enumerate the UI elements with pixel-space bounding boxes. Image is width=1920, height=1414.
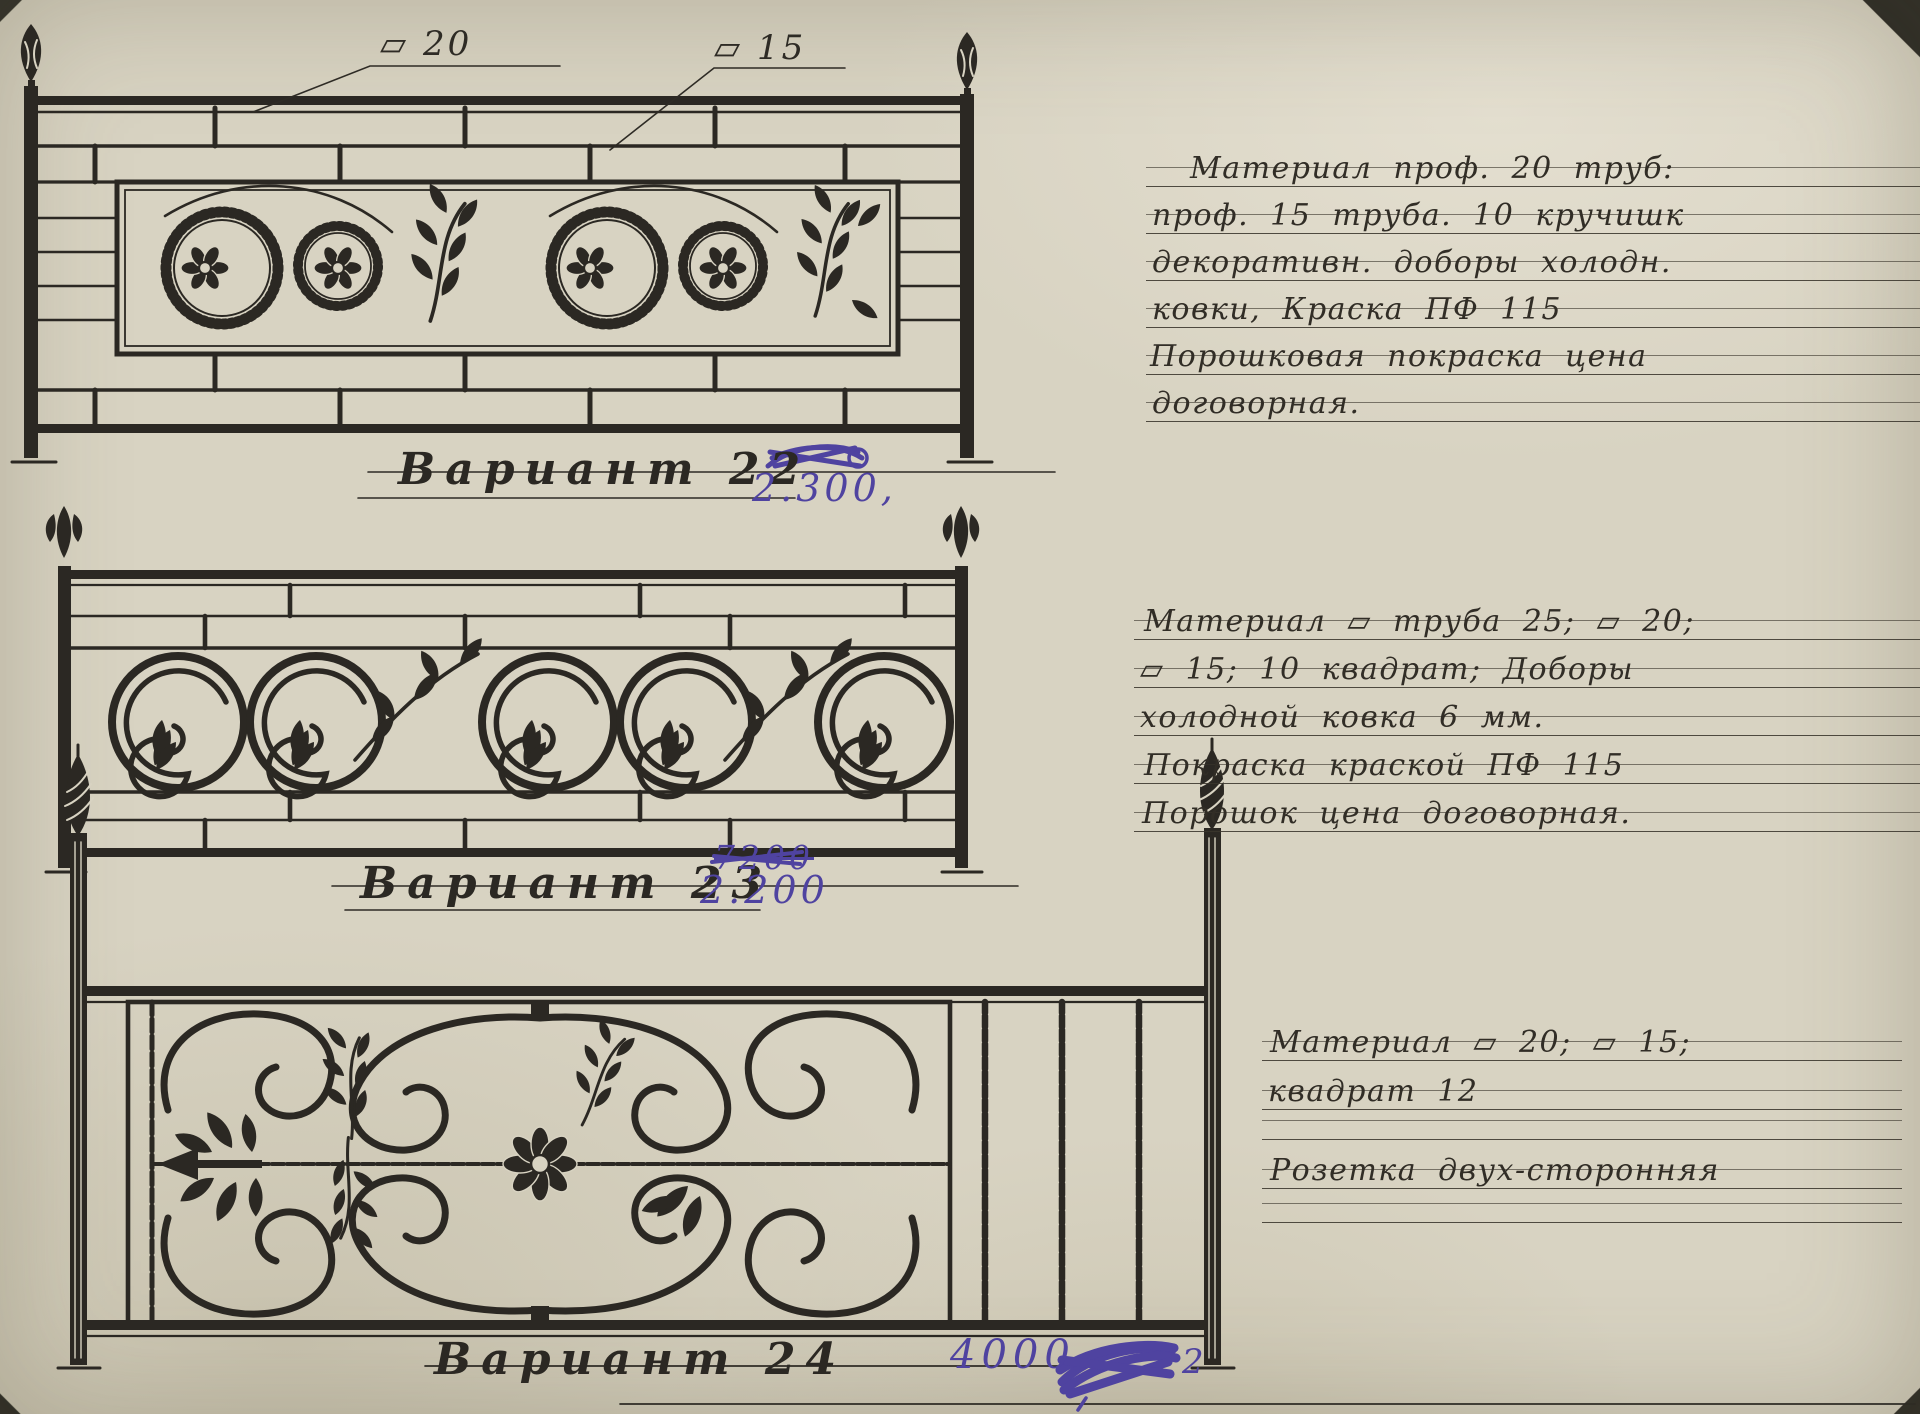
note-text: Порошковая покраска цена <box>1150 339 1648 374</box>
materials-note-variant-23: Материал ▱ труба 25; ▱ 20; ▱ 15; 10 квад… <box>1134 592 1920 832</box>
bud-finial-icon <box>46 506 979 558</box>
note-text: Материал ▱ труба 25; ▱ 20; <box>1144 604 1695 639</box>
note-line: холодной ковка 6 мм. <box>1134 688 1920 736</box>
materials-note-variant-24: Материал ▱ 20; ▱ 15; квадрат 12 Розетка … <box>1262 1012 1902 1223</box>
note-text: проф. 15 труба. 10 кручишк <box>1152 198 1685 233</box>
materials-note-variant-22: Материал проф. 20 труб: проф. 15 труба. … <box>1146 140 1920 422</box>
note-text: Материал проф. 20 труб: <box>1190 151 1675 186</box>
note-line: квадрат 12 <box>1262 1061 1902 1110</box>
variant-22-price: 2.300, <box>752 466 897 510</box>
spear-finial-icon <box>21 24 977 96</box>
spiral-scroll-ornament <box>112 635 950 797</box>
note-line: договорная. <box>1146 375 1920 422</box>
dim-label-profile-15: ▱ 15 <box>714 28 806 68</box>
floral-garland-ornament <box>165 181 885 324</box>
note-line: Материал проф. 20 труб: <box>1146 140 1920 187</box>
note-text: ▱ 15; 10 квадрат; Доборы <box>1140 652 1634 687</box>
note-text: договорная. <box>1152 386 1361 421</box>
fence-sketch-variant-23 <box>46 506 1018 910</box>
rosette-flower-icon <box>503 1127 577 1201</box>
note-line: проф. 15 труба. 10 кручишк <box>1146 187 1920 234</box>
note-line: Порошковая покраска цена <box>1146 328 1920 375</box>
note-text: Розетка двух-сторонняя <box>1270 1153 1720 1188</box>
sketch-sheet: ▱ 20 ▱ 15 Вариант 22 2.300, Вариант 23 7… <box>0 0 1920 1414</box>
variant-22-label: Вариант 22 <box>398 444 810 495</box>
note-text: Материал ▱ 20; ▱ 15; <box>1270 1025 1691 1060</box>
note-text: квадрат 12 <box>1268 1074 1479 1109</box>
pen-scribble-marks <box>712 447 1176 1410</box>
note-text: декоративн. доборы холодн. <box>1152 245 1672 280</box>
note-line: декоративн. доборы холодн. <box>1146 234 1920 281</box>
note-line: ▱ 15; 10 квадрат; Доборы <box>1134 640 1920 688</box>
note-text: Покраска краской ПФ 115 <box>1144 748 1624 783</box>
note-line: Покраска краской ПФ 115 <box>1134 736 1920 784</box>
dim-label-profile-20: ▱ 20 <box>380 24 472 64</box>
note-line: ковки, Краска ПФ 115 <box>1146 281 1920 328</box>
dimension-leader-lines <box>253 66 845 150</box>
note-line: Порошок цена договорная. <box>1134 784 1920 832</box>
variant-24-label: Вариант 24 <box>434 1334 846 1385</box>
variant-23-price: 2.200 <box>700 868 829 912</box>
note-line: Материал ▱ 20; ▱ 15; <box>1262 1012 1902 1061</box>
note-line: Розетка двух-сторонняя <box>1262 1140 1902 1189</box>
note-line: Материал ▱ труба 25; ▱ 20; <box>1134 592 1920 640</box>
twisted-picket-bars <box>985 1002 1139 1320</box>
note-text: ковки, Краска ПФ 115 <box>1152 292 1562 327</box>
note-text: Порошок цена договорная. <box>1142 796 1631 831</box>
variant-24-price-tail: 2 <box>1182 1342 1208 1382</box>
variant-24-price: 4000 <box>950 1332 1076 1378</box>
note-text: холодной ковка 6 мм. <box>1140 700 1545 735</box>
note-line <box>1262 1189 1902 1223</box>
note-line <box>1262 1110 1902 1140</box>
fence-sketch-variant-22 <box>12 24 1055 498</box>
